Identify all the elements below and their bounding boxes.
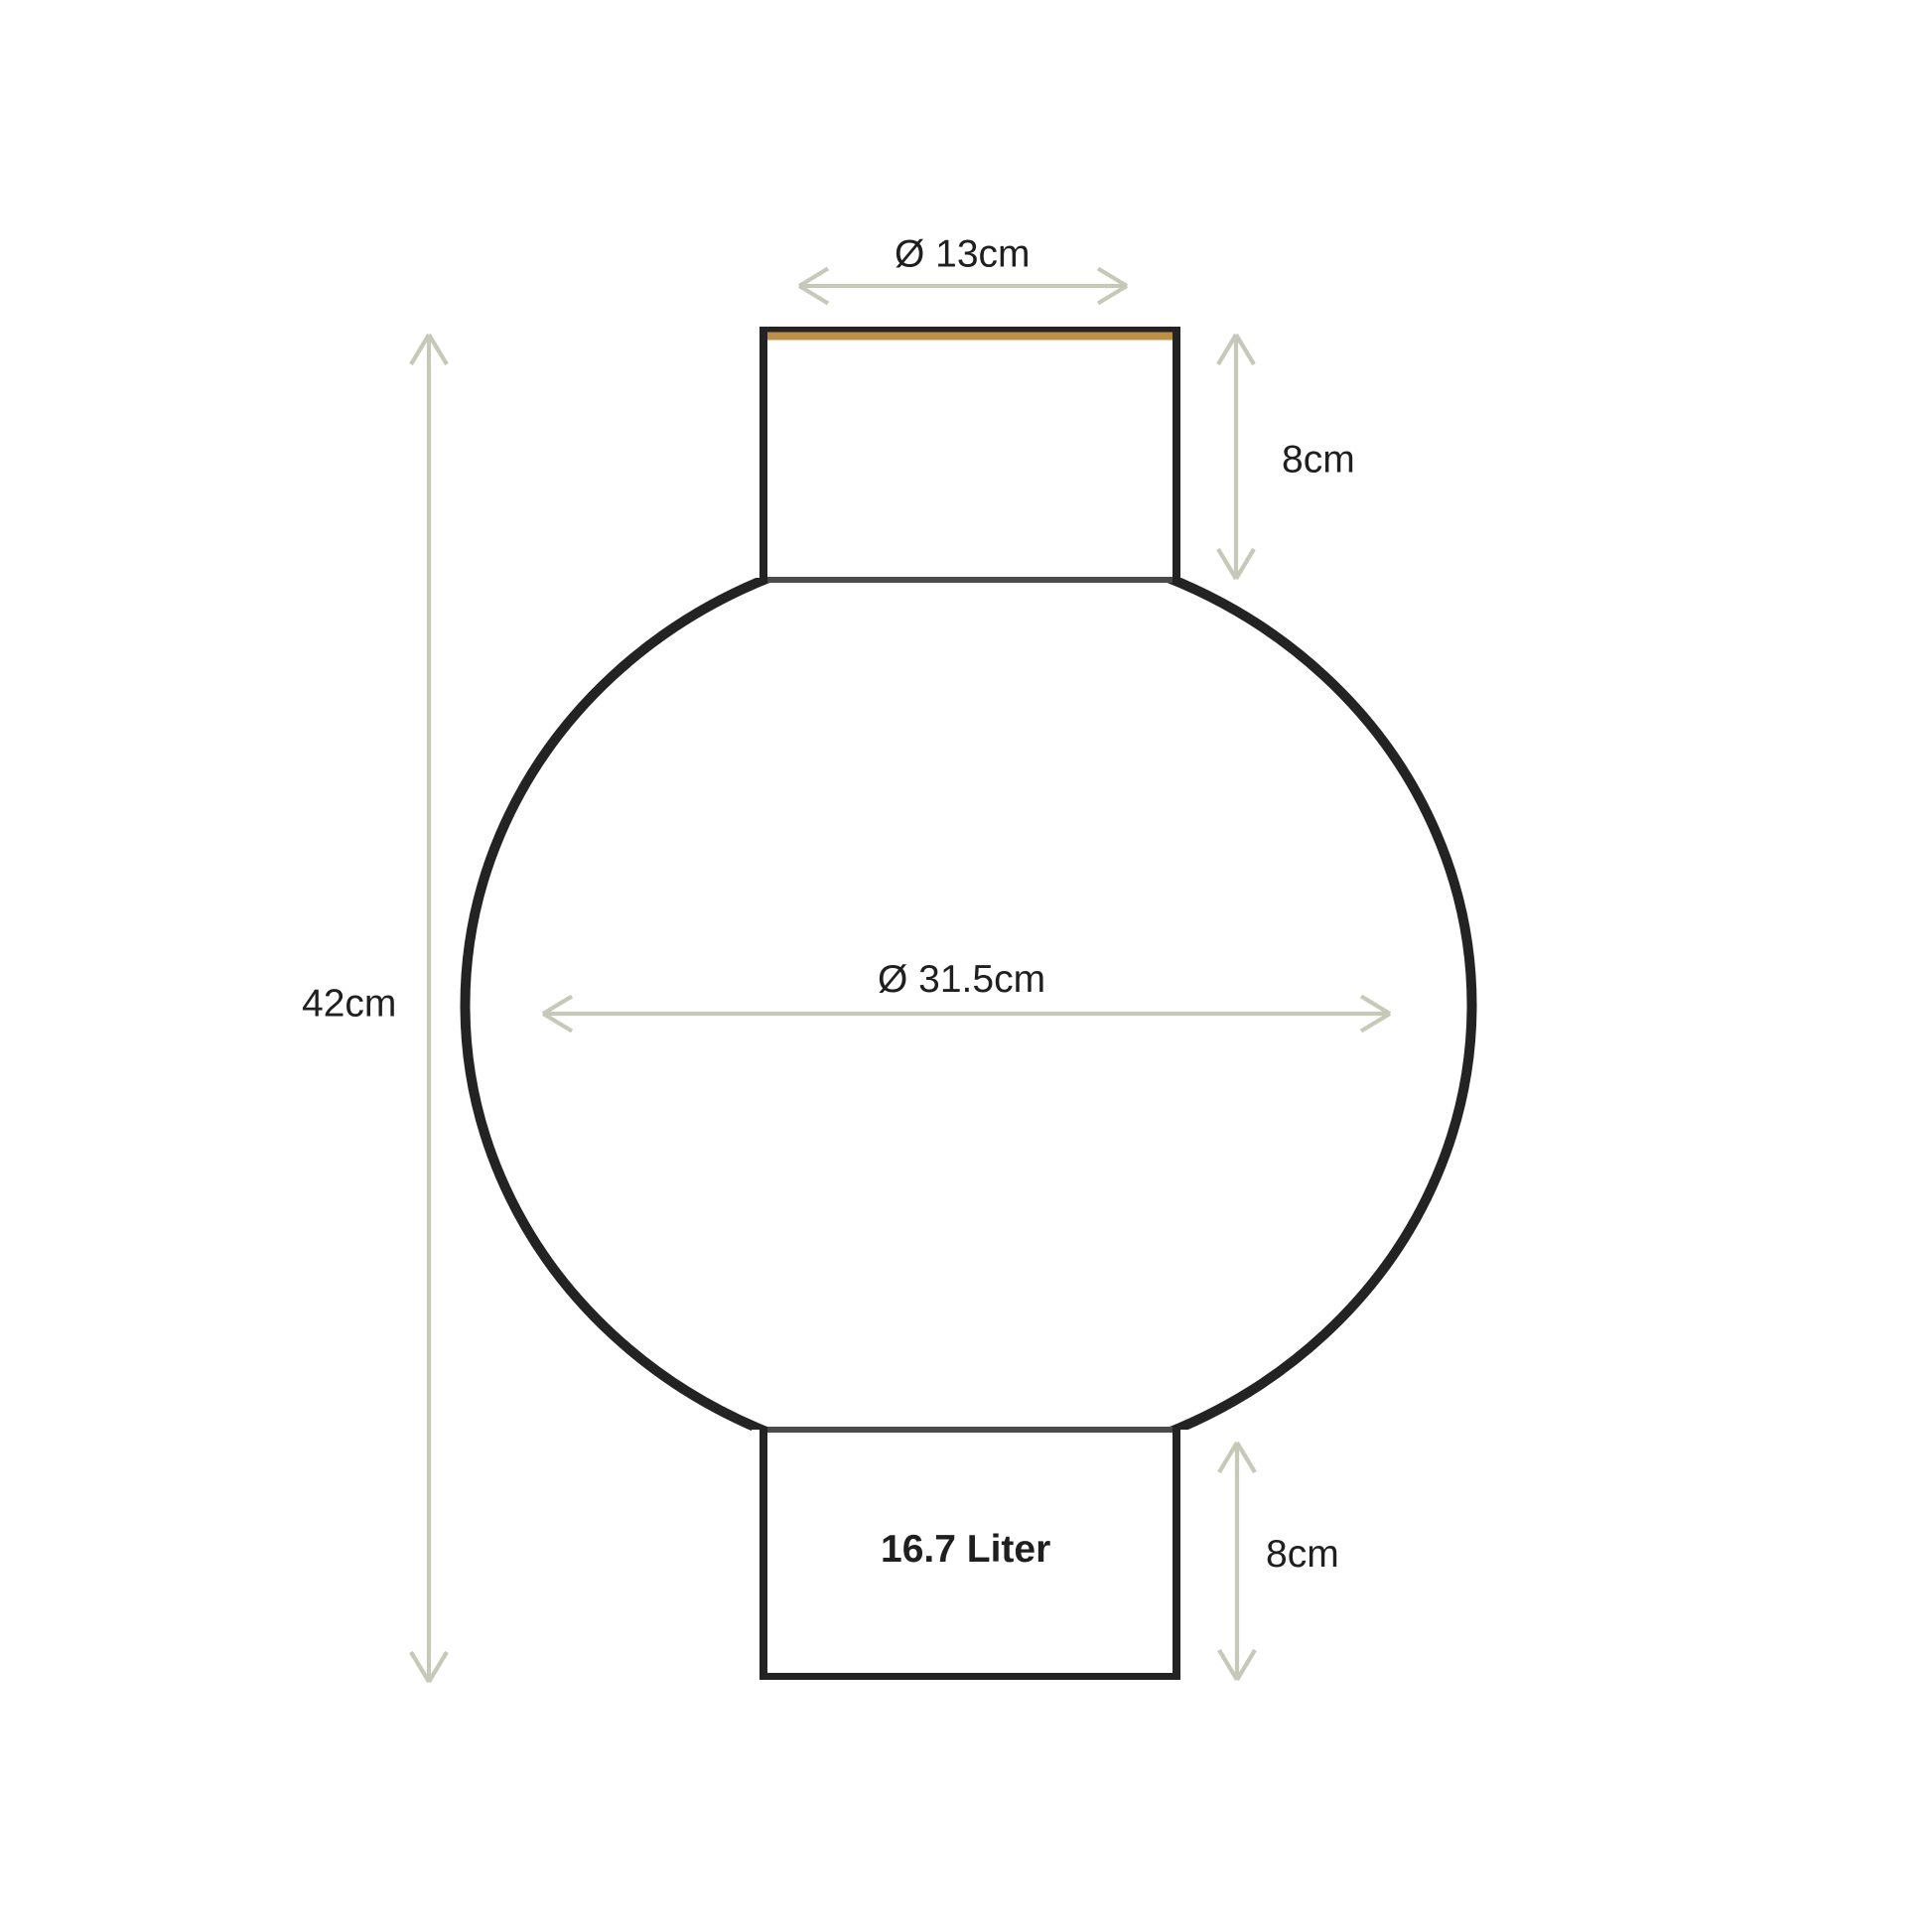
svg-text:8cm: 8cm — [1282, 439, 1355, 482]
svg-text:42cm: 42cm — [302, 983, 396, 1026]
svg-text:16.7 Liter: 16.7 Liter — [881, 1528, 1050, 1571]
svg-text:8cm: 8cm — [1266, 1533, 1339, 1576]
svg-text:Ø 31.5cm: Ø 31.5cm — [878, 958, 1045, 1001]
svg-text:Ø 13cm: Ø 13cm — [895, 233, 1031, 276]
